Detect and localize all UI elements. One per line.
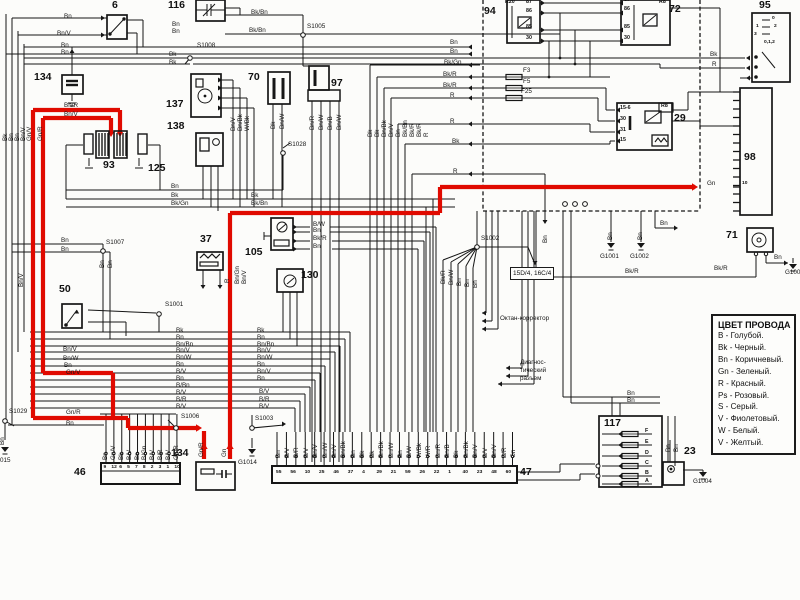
wire-label: Bn/W xyxy=(319,115,326,130)
wire-label: R xyxy=(225,278,232,283)
ignition-position-label: 1 xyxy=(756,24,759,29)
ground-label: G1002 xyxy=(630,254,649,261)
junction-label: S1003 xyxy=(255,416,273,423)
connector-ref-box: 15D/4, 16C/4 xyxy=(510,267,554,280)
diagnostic-connector-label: тический xyxy=(520,368,546,375)
connector-pin-number: 10 xyxy=(742,181,747,186)
wire-label: B/V xyxy=(259,389,269,396)
component-number: 134 xyxy=(34,72,52,82)
connector-pin-number: 22 xyxy=(434,470,439,475)
ground-label: 015 xyxy=(0,458,11,465)
wire-label: Bn xyxy=(108,260,115,268)
wire-label: Bn xyxy=(627,398,635,405)
legend-entry: B - Голубой. xyxy=(718,330,794,342)
component-number: 138 xyxy=(167,121,185,131)
wire-label: B/V xyxy=(127,450,134,460)
wire-label: B/V xyxy=(166,450,173,460)
wire-label: Bn/Bk xyxy=(464,441,471,458)
junction-label: S1001 xyxy=(165,302,183,309)
wire-label: Bn/Bk xyxy=(379,441,386,458)
wire-label: Bn xyxy=(660,221,668,228)
connector-ref-text: 15D/4, 16C/4 xyxy=(513,270,551,277)
component-number: 98 xyxy=(744,152,756,162)
wire-label: B/V xyxy=(176,404,186,411)
connector-pin-number: 8 xyxy=(143,465,146,470)
connector-number: 47 xyxy=(520,467,532,477)
connector-pin-number: 55 xyxy=(276,470,281,475)
wire-label: Bn/W xyxy=(449,270,456,285)
wire-label: W/R xyxy=(426,446,433,458)
wire-label: Gn/V xyxy=(66,370,80,377)
wire-label: Bn xyxy=(100,260,107,268)
legend-entry: R - Красный. xyxy=(718,378,794,390)
connector-pin-number: 7 xyxy=(135,465,138,470)
relay-pin-label: 30 xyxy=(624,36,630,42)
ignition-position-label: 2 xyxy=(774,24,777,29)
wire-label: Gn xyxy=(707,181,715,188)
connector-pin-number: 56 xyxy=(290,470,295,475)
diagnostic-connector-label: разъем xyxy=(520,376,541,383)
wire-label: Bn xyxy=(66,421,74,428)
wire-label: Bk/Gn xyxy=(171,201,189,208)
connector-pin-number: 48 xyxy=(491,470,496,475)
legend-entry: W - Белый. xyxy=(718,425,794,437)
wire-color-legend: ЦВЕТ ПРОВОДА B - Голубой.Bk - Черный.Bn … xyxy=(711,314,796,455)
wire-label: W/Bk xyxy=(245,116,252,131)
fuse-letter: B xyxy=(645,471,649,477)
wire-label: Bk xyxy=(171,193,178,200)
junction-label: S1029 xyxy=(9,409,27,416)
component-number: 71 xyxy=(726,230,738,240)
wire-label: Bn xyxy=(351,450,358,458)
diagnostic-connector-label: Диагнос- xyxy=(520,360,546,367)
fuse-letter: D xyxy=(645,451,649,457)
wire-label: Bn xyxy=(313,244,321,251)
relay-pin-label: 30 xyxy=(526,36,532,42)
wire-label: Bn/R xyxy=(310,116,317,130)
connector-number: 46 xyxy=(74,467,86,477)
connector-pin-number: 2 xyxy=(151,465,154,470)
wire-label: B/V xyxy=(483,448,490,458)
connector-pin-number: 10 xyxy=(174,465,179,470)
wire-label: B/V xyxy=(304,448,311,458)
wire-label: Bn xyxy=(450,49,458,56)
wire-label: Gn xyxy=(511,450,518,458)
component-number: 125 xyxy=(148,163,166,173)
wire-label: B/V xyxy=(150,450,157,460)
component-number: 6 xyxy=(112,0,118,10)
component-number: 70 xyxy=(248,72,260,82)
wire-label: Bn xyxy=(473,280,480,288)
wire-label: Bn xyxy=(666,444,673,452)
wire-label: Bk xyxy=(360,451,367,458)
connector-pin-number: 1 xyxy=(167,465,170,470)
relay-pin-label: 15-6 xyxy=(620,106,631,112)
component-number: 97 xyxy=(331,78,343,88)
component-number: 116 xyxy=(168,0,185,10)
wire-label: B/R xyxy=(158,450,165,461)
wire-label: Bk/R xyxy=(714,266,728,273)
wire-label: Bk xyxy=(710,52,717,59)
legend-entries: B - Голубой.Bk - Черный.Bn - Коричневый.… xyxy=(718,330,794,449)
legend-entry: Ps - Розовый. xyxy=(718,390,794,402)
wire-label: Bn/B xyxy=(328,116,335,130)
fuse-label: F3 xyxy=(523,68,530,75)
wire-label: Bn xyxy=(608,232,615,240)
wire-label: Bk/R xyxy=(313,236,327,243)
wire-label: Bk xyxy=(370,451,377,458)
connector-pin-number: 10 xyxy=(305,470,310,475)
relay-pin-label: 85 xyxy=(624,25,630,31)
fuse-label: F25 xyxy=(521,89,532,96)
connector-pin-number: 4 xyxy=(362,470,365,475)
wire-label: Bn/Bk xyxy=(341,441,348,458)
connector-pin-number: 3 xyxy=(159,465,162,470)
ground-label: G1003 xyxy=(785,270,800,277)
wire-label: B/R xyxy=(502,448,509,459)
relay-pin-label: 86 xyxy=(526,9,532,15)
wire-label: W/Bk xyxy=(417,443,424,458)
junction-label: S1007 xyxy=(106,240,124,247)
wire-label: Bk/R xyxy=(625,269,639,276)
wire-label: Bn xyxy=(61,50,69,57)
wire-label: Bn/W xyxy=(389,443,396,458)
wire-label: Bk xyxy=(271,122,278,129)
wire-label: Gn/R xyxy=(199,442,206,457)
ignition-position-label: 0 xyxy=(772,16,775,21)
wire-label: Bn/V xyxy=(64,112,78,119)
wire-label: Bn xyxy=(276,450,283,458)
fuse-letter: F xyxy=(645,429,648,435)
relay-tag: R8 xyxy=(659,0,666,6)
wire-label: Bn xyxy=(61,247,69,254)
component-number: 105 xyxy=(245,247,263,257)
wire-label: Bn/V xyxy=(332,444,339,458)
wire-label: Bn/R xyxy=(64,103,78,110)
junction-label: S1008 xyxy=(197,43,215,50)
wire-label: Bk xyxy=(169,60,176,67)
connector-pin-number: 1 xyxy=(448,470,451,475)
wire-label: Bk xyxy=(119,453,126,460)
legend-entry: S - Серый. xyxy=(718,401,794,413)
wire-label: Bn xyxy=(457,278,464,286)
component-number: 137 xyxy=(166,99,184,109)
component-number: 29 xyxy=(674,113,686,123)
legend-entry: Gn - Зеленый. xyxy=(718,366,794,378)
wire-label: B/W xyxy=(407,446,414,458)
connector-pin-number: 21 xyxy=(391,470,396,475)
wire-label: Bn xyxy=(103,452,110,460)
fuse-label: F5 xyxy=(523,79,530,86)
wire-label: Bk xyxy=(169,52,176,59)
wire-label: Bn/V xyxy=(473,444,480,458)
ignition-position-label: 3 xyxy=(754,32,757,37)
wire-label: Bn/B xyxy=(445,444,452,458)
legend-entry: V - Фиолетовый. xyxy=(718,413,794,425)
wire-label: Bk/Bn xyxy=(251,10,268,17)
wire-label: R xyxy=(712,62,717,69)
connector-pin-number: 23 xyxy=(477,470,482,475)
wire-label: Bn xyxy=(774,255,782,262)
connector-pin-number: 9 xyxy=(104,465,107,470)
wire-label: Bn/V xyxy=(19,273,26,287)
wire-label: Bn xyxy=(465,279,472,287)
wire-label: Bn xyxy=(171,184,179,191)
wire-label: Bk/Bn xyxy=(249,28,266,35)
ignition-position-label: 0,1,2 xyxy=(764,40,775,45)
legend-entry: V - Желтый. xyxy=(718,437,794,449)
wire-label: Bn xyxy=(172,29,180,36)
wire-label: Bn xyxy=(0,437,7,445)
wire-label: Bn/V xyxy=(492,444,499,458)
wire-label: Bn xyxy=(638,232,645,240)
wire-label: Bn/V xyxy=(242,270,249,284)
wire-label: B/Gn xyxy=(142,446,149,460)
relay-tag: R20 xyxy=(505,0,515,6)
component-number: 130 xyxy=(301,270,319,280)
junction-label: S1002 xyxy=(481,236,499,243)
wire-label: Bk xyxy=(251,193,258,200)
junction-label: S1006 xyxy=(181,414,199,421)
component-number: 50 xyxy=(59,284,71,294)
connector-pin-number: 25 xyxy=(319,470,324,475)
relay-tag: R8 xyxy=(661,104,668,110)
ground-label: G1001 xyxy=(600,254,619,261)
wire-label: B/R xyxy=(294,448,301,459)
relay-pin-label: 86 xyxy=(624,7,630,13)
connector-pin-number: 12 xyxy=(111,465,116,470)
connector-pin-number: 5 xyxy=(127,465,130,470)
junction-label: S1028 xyxy=(288,142,306,149)
wire-label: Bn xyxy=(398,450,405,458)
wire-label: R xyxy=(450,119,455,126)
fuse-letter: E xyxy=(645,440,649,446)
wire-label: Bk/R xyxy=(443,83,457,90)
wire-label: Bk/Bn xyxy=(251,201,268,208)
wire-label: Bn/V xyxy=(57,31,71,38)
wire-label: Gn/V xyxy=(27,127,34,141)
wire-label: Bn/V xyxy=(313,444,320,458)
relay-pin-label: 87 xyxy=(526,0,532,6)
wire-label: B/V xyxy=(259,404,269,411)
wire-label: B/V xyxy=(285,448,292,458)
connector-pin-number: 6 xyxy=(119,465,122,470)
wire-label: Bk/Gn xyxy=(444,60,462,67)
legend-entry: Bn - Коричневый. xyxy=(718,354,794,366)
wire-label: Bk xyxy=(454,451,461,458)
relay-pin-label: 15 xyxy=(620,138,626,144)
wire-label: Bn/W xyxy=(323,443,330,458)
connector-pin-number: 40 xyxy=(463,470,468,475)
wire-label: Bn/W xyxy=(280,114,287,129)
component-number: 72 xyxy=(669,4,681,14)
wire-label: R xyxy=(453,169,458,176)
octane-corrector-label: Октан-корректор xyxy=(500,316,549,323)
connector-pin-number: 29 xyxy=(376,470,381,475)
component-number: 23 xyxy=(684,446,696,456)
relay-pin-label: 87 xyxy=(624,0,630,4)
wire-label: Gn/R xyxy=(174,445,181,460)
ground-label: G1004 xyxy=(693,479,712,486)
wire-label: Bn/V xyxy=(63,347,77,354)
legend-entry: Bk - Черный. xyxy=(718,342,794,354)
component-number: 93 xyxy=(103,160,115,170)
component-number: 94 xyxy=(484,6,496,16)
wire-label: Bn/R xyxy=(436,444,443,458)
connector-pin-number: 46 xyxy=(333,470,338,475)
connector-pin-number: 59 xyxy=(405,470,410,475)
connector-pin-number: 60 xyxy=(506,470,511,475)
wire-label: Bn xyxy=(61,238,69,245)
wire-label: Bn xyxy=(450,40,458,47)
wire-label: Bk xyxy=(452,139,459,146)
wire-label: Bn xyxy=(257,376,265,383)
connector-pin-number: 37 xyxy=(348,470,353,475)
wire-label: Bn xyxy=(313,228,321,235)
relay-pin-label: 85 xyxy=(526,25,532,31)
relay-pin-label: 31 xyxy=(620,128,626,134)
junction-label: S1005 xyxy=(307,24,325,31)
wire-label: Gn/V xyxy=(111,446,118,460)
wire-label: Bk/R xyxy=(441,270,448,284)
wire-label: R xyxy=(450,93,455,100)
wire-label: R xyxy=(424,132,431,137)
wire-label: Bn xyxy=(64,14,72,21)
wire-label: Gn/R xyxy=(66,410,81,417)
wiring-diagram-page: BnBn/VBnBnBnBnBkBkBk/BnBk/BnBn/RBn/VBnBk… xyxy=(0,0,800,600)
wire-label: Bn/W xyxy=(337,115,344,130)
ground-label: G1014 xyxy=(238,460,257,467)
wire-label: Bn xyxy=(543,235,550,243)
wire-label: Gn xyxy=(222,449,229,457)
component-number: 95 xyxy=(759,0,771,10)
diagram-canvas xyxy=(0,0,800,520)
component-number: 117 xyxy=(604,418,621,428)
wire-label: Gn/R xyxy=(38,126,45,141)
fuse-letter: C xyxy=(645,461,649,467)
fuse-letter: A xyxy=(645,479,649,485)
wire-label: Bn xyxy=(674,444,681,452)
relay-pin-label: 30 xyxy=(620,117,626,123)
wire-label: Bk/R xyxy=(443,72,457,79)
connector-pin-number: 26 xyxy=(420,470,425,475)
legend-title: ЦВЕТ ПРОВОДА xyxy=(718,320,794,330)
component-number: 37 xyxy=(200,234,212,244)
